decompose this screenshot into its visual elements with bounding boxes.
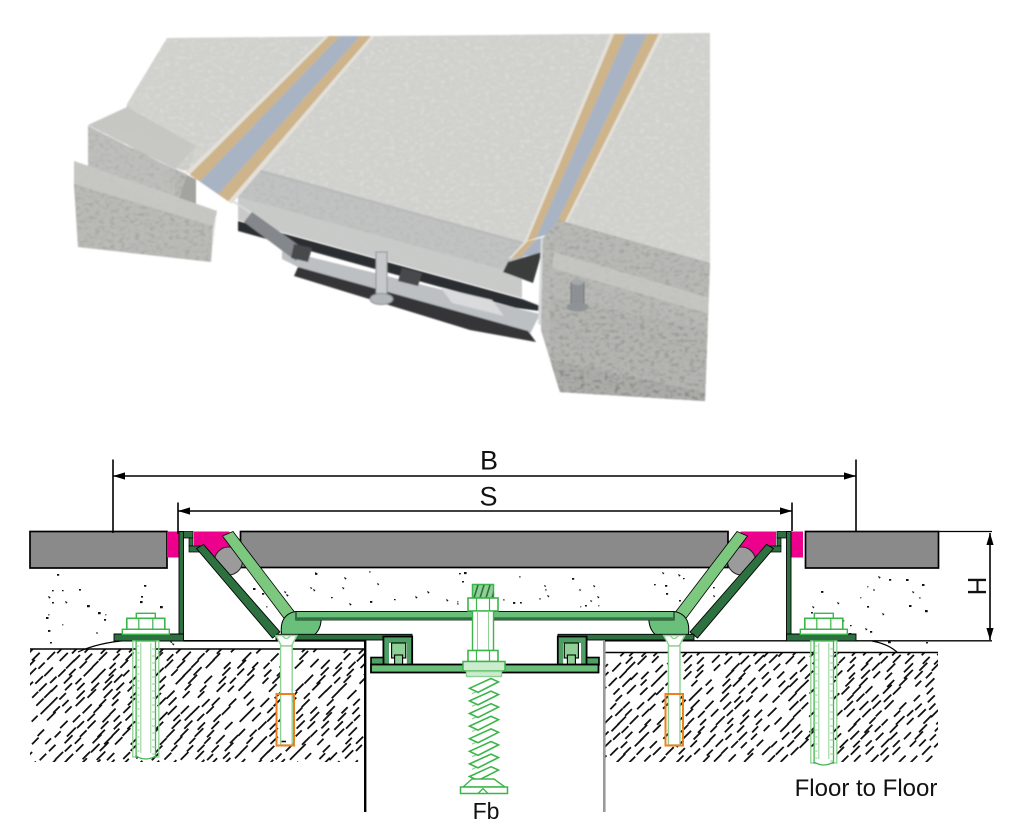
- svg-text:B: B: [480, 446, 498, 476]
- svg-text:Fb: Fb: [473, 798, 500, 820]
- svg-text:Floor to Floor: Floor to Floor: [795, 775, 938, 802]
- svg-text:H: H: [962, 577, 992, 596]
- svg-text:S: S: [479, 482, 497, 512]
